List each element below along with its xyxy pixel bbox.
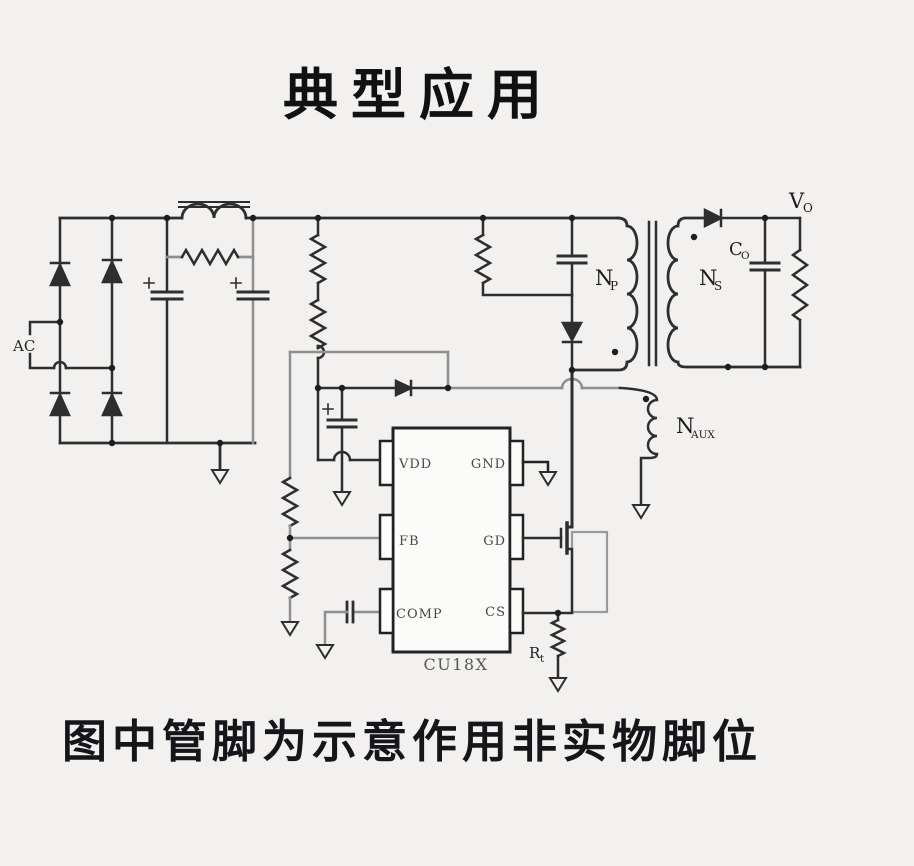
pin-label-cs: CS [485, 605, 506, 620]
snubber-clamp [476, 218, 586, 370]
output-diode [705, 210, 721, 226]
sense-resistor [552, 620, 564, 656]
primary-label-sub: P [610, 279, 618, 293]
primary-polarity-dot [612, 349, 618, 355]
secondary-label-sub: S [714, 279, 722, 293]
vdd-diode [396, 381, 411, 395]
ground-vdd-cap [334, 492, 350, 505]
aux-label-sub: AUX [690, 429, 715, 441]
mosfet-outline-box [572, 532, 607, 612]
bulk-cap-1 [144, 218, 182, 443]
aux-polarity-dot [643, 396, 649, 402]
ground-fb-divider [282, 622, 298, 635]
pin-label-comp: COMP [396, 607, 443, 622]
controller-ic: VDD GND FB GD COMP CS CU18X [380, 428, 548, 674]
comp-network [325, 602, 380, 645]
source-wire [558, 549, 572, 613]
bridge-diode-4 [103, 393, 121, 415]
startup-resistors [311, 218, 325, 460]
pin-gnd [510, 441, 523, 485]
aux-coil [620, 388, 657, 505]
pin-label-fb: FB [399, 534, 420, 549]
pin-fb [380, 515, 393, 559]
bridge-diode-2 [103, 260, 121, 282]
pin-gd [510, 515, 523, 559]
ic-part-number: CU18X [424, 655, 489, 674]
pin-label-gnd: GND [471, 457, 506, 472]
primary-winding [572, 218, 637, 370]
ground-sense [550, 678, 566, 691]
damping-resistor [167, 250, 253, 264]
ground-gnd-pin [540, 472, 556, 485]
startup-resistor-1 [311, 235, 325, 283]
startup-resistor-2 [311, 300, 325, 348]
fb-resistor-lower [283, 550, 297, 598]
ground-comp [317, 645, 333, 658]
ac-input: AC [12, 322, 112, 368]
drain-wire [567, 370, 572, 527]
input-filter [60, 202, 618, 470]
pin-comp [380, 589, 393, 633]
snubber-diode [563, 295, 581, 370]
plus-sign [231, 278, 241, 288]
output-stage: V O C O [705, 189, 813, 367]
vout-label-sub: O [803, 201, 813, 215]
pin-label-gd: GD [483, 534, 506, 549]
snubber-resistor [476, 235, 490, 283]
snubber-capacitor [558, 218, 586, 295]
bridge-diode-1 [51, 263, 69, 285]
mosfet-stage: R t [523, 370, 607, 678]
cout-label-sub: O [741, 250, 750, 262]
fb-resistor-upper [283, 478, 297, 526]
sense-resistor-label-sub: t [540, 653, 545, 665]
inductor-core-lines [179, 202, 249, 207]
plus-sign [144, 278, 154, 288]
pin-vdd [380, 441, 393, 485]
output-capacitor [751, 218, 779, 367]
secondary-polarity-dot [691, 234, 697, 240]
gnd-pin-wire [523, 462, 548, 472]
core-bars [649, 222, 656, 365]
bulk-cap-2 [231, 218, 268, 443]
bridge-rectifier [51, 218, 121, 443]
load-resistor [793, 218, 807, 367]
pin-label-vdd: VDD [398, 457, 432, 472]
ac-label: AC [12, 337, 35, 355]
pin-cs [510, 589, 523, 633]
ground-aux [633, 505, 649, 518]
bridge-diode-3 [51, 393, 69, 415]
ac-terminal-bottom [30, 354, 112, 368]
ac-terminal-top [30, 322, 60, 334]
ground-input [212, 470, 228, 483]
page-caption: 图中管脚为示意作用非实物脚位 [62, 705, 762, 770]
vdd-capacitor [323, 388, 356, 492]
plus-sign [323, 404, 333, 414]
